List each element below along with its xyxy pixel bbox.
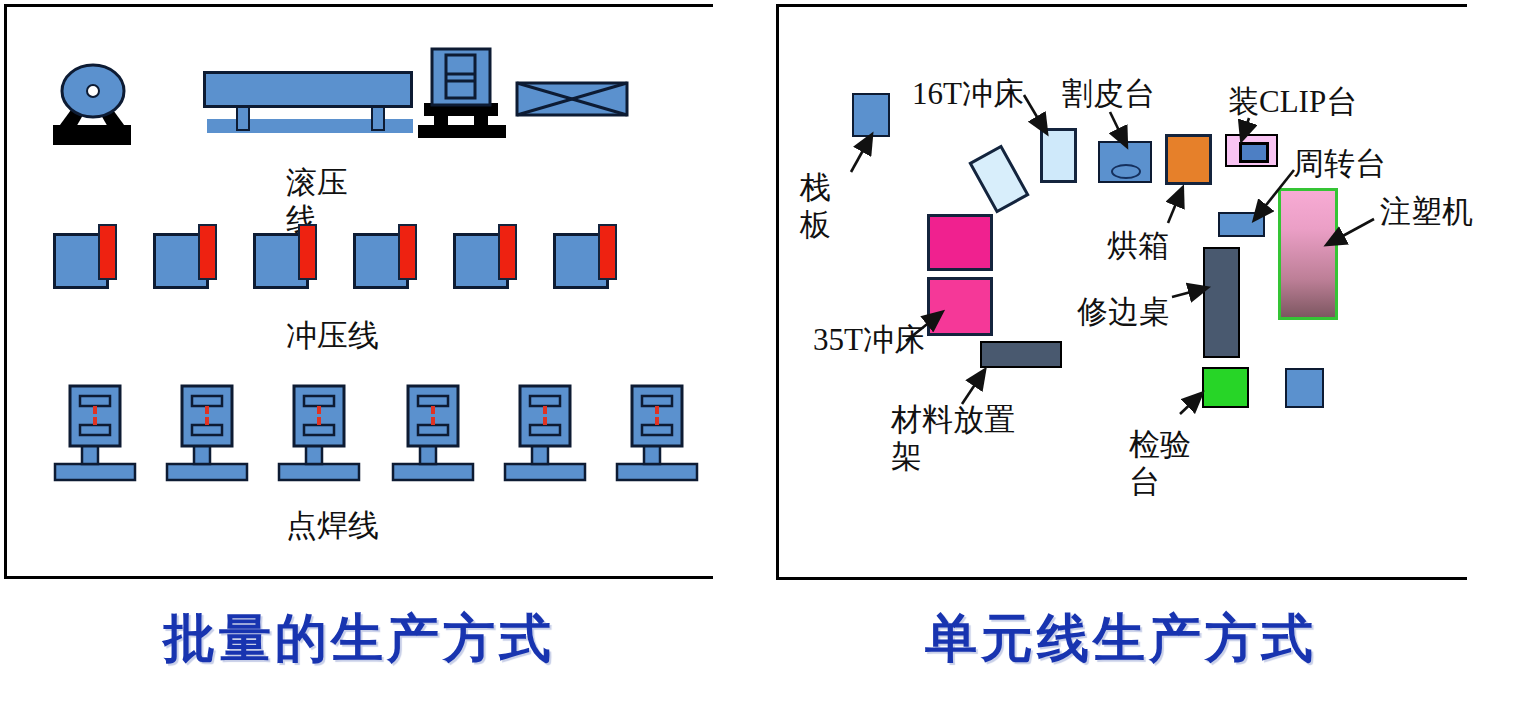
material-rack-block	[980, 341, 1062, 368]
stamping-press-die	[498, 224, 517, 280]
inspection-block	[1202, 367, 1249, 408]
spot-welder-icon	[503, 384, 587, 482]
clip-station-inner-block	[1239, 142, 1269, 163]
turnover-label: 周转台	[1293, 146, 1386, 183]
stamping-press-die	[98, 224, 117, 280]
stamping-press-die	[198, 224, 217, 280]
batch-panel: 滚压线 冲压线	[4, 4, 713, 579]
inspection-label: 检验台	[1129, 427, 1201, 500]
stamping-line-label: 冲压线	[286, 318, 379, 355]
roller-machine-icon	[49, 63, 135, 149]
skin-cutting-block	[1098, 141, 1152, 183]
press-35t-block	[927, 214, 993, 271]
table-leg	[371, 105, 385, 131]
skin-cutting-ellipse	[1111, 164, 1141, 179]
cabinet-machine-icon	[416, 47, 508, 139]
pallet-label: 栈板	[800, 170, 836, 243]
spot-welder-icon	[277, 384, 361, 482]
spot-welder-icon	[53, 384, 137, 482]
stamping-press-die	[598, 224, 617, 280]
right-caption: 单元线生产方式	[776, 604, 1466, 674]
oven-block	[1165, 134, 1212, 185]
stamping-press-die	[298, 224, 317, 280]
injection-molding-block	[1278, 188, 1338, 320]
spot-welder-icon	[165, 384, 249, 482]
trimming-table-block	[1203, 247, 1240, 358]
stamping-press-die	[398, 224, 417, 280]
welding-line-label: 点焊线	[286, 508, 379, 545]
table-top	[203, 71, 413, 108]
clip-station-block	[1225, 134, 1278, 167]
material-rack-label: 材料放置架	[891, 402, 1029, 475]
crossed-box-icon	[515, 81, 629, 117]
table-leg	[236, 105, 250, 131]
clip-station-label: 装CLIP台	[1228, 84, 1357, 121]
pallet-block	[852, 93, 890, 137]
press-16t-label: 16T冲床	[912, 76, 1024, 113]
skin-cutting-label: 割皮台	[1062, 76, 1155, 113]
press-16t-block	[1040, 128, 1077, 183]
press-35t-label: 35T冲床	[813, 322, 925, 359]
spot-welder-icon	[615, 384, 699, 482]
turnover-block	[1218, 212, 1265, 237]
spare-table-block	[1285, 368, 1324, 408]
oven-label: 烘箱	[1107, 228, 1169, 265]
trimming-table-label: 修边桌	[1077, 294, 1170, 331]
press-35t-block	[927, 277, 993, 336]
injection-molding-label: 注塑机	[1380, 194, 1473, 231]
spot-welder-icon	[391, 384, 475, 482]
slide: { "left_panel": { "caption": "批量的生产方式", …	[0, 0, 1515, 705]
left-caption: 批量的生产方式	[4, 604, 714, 674]
